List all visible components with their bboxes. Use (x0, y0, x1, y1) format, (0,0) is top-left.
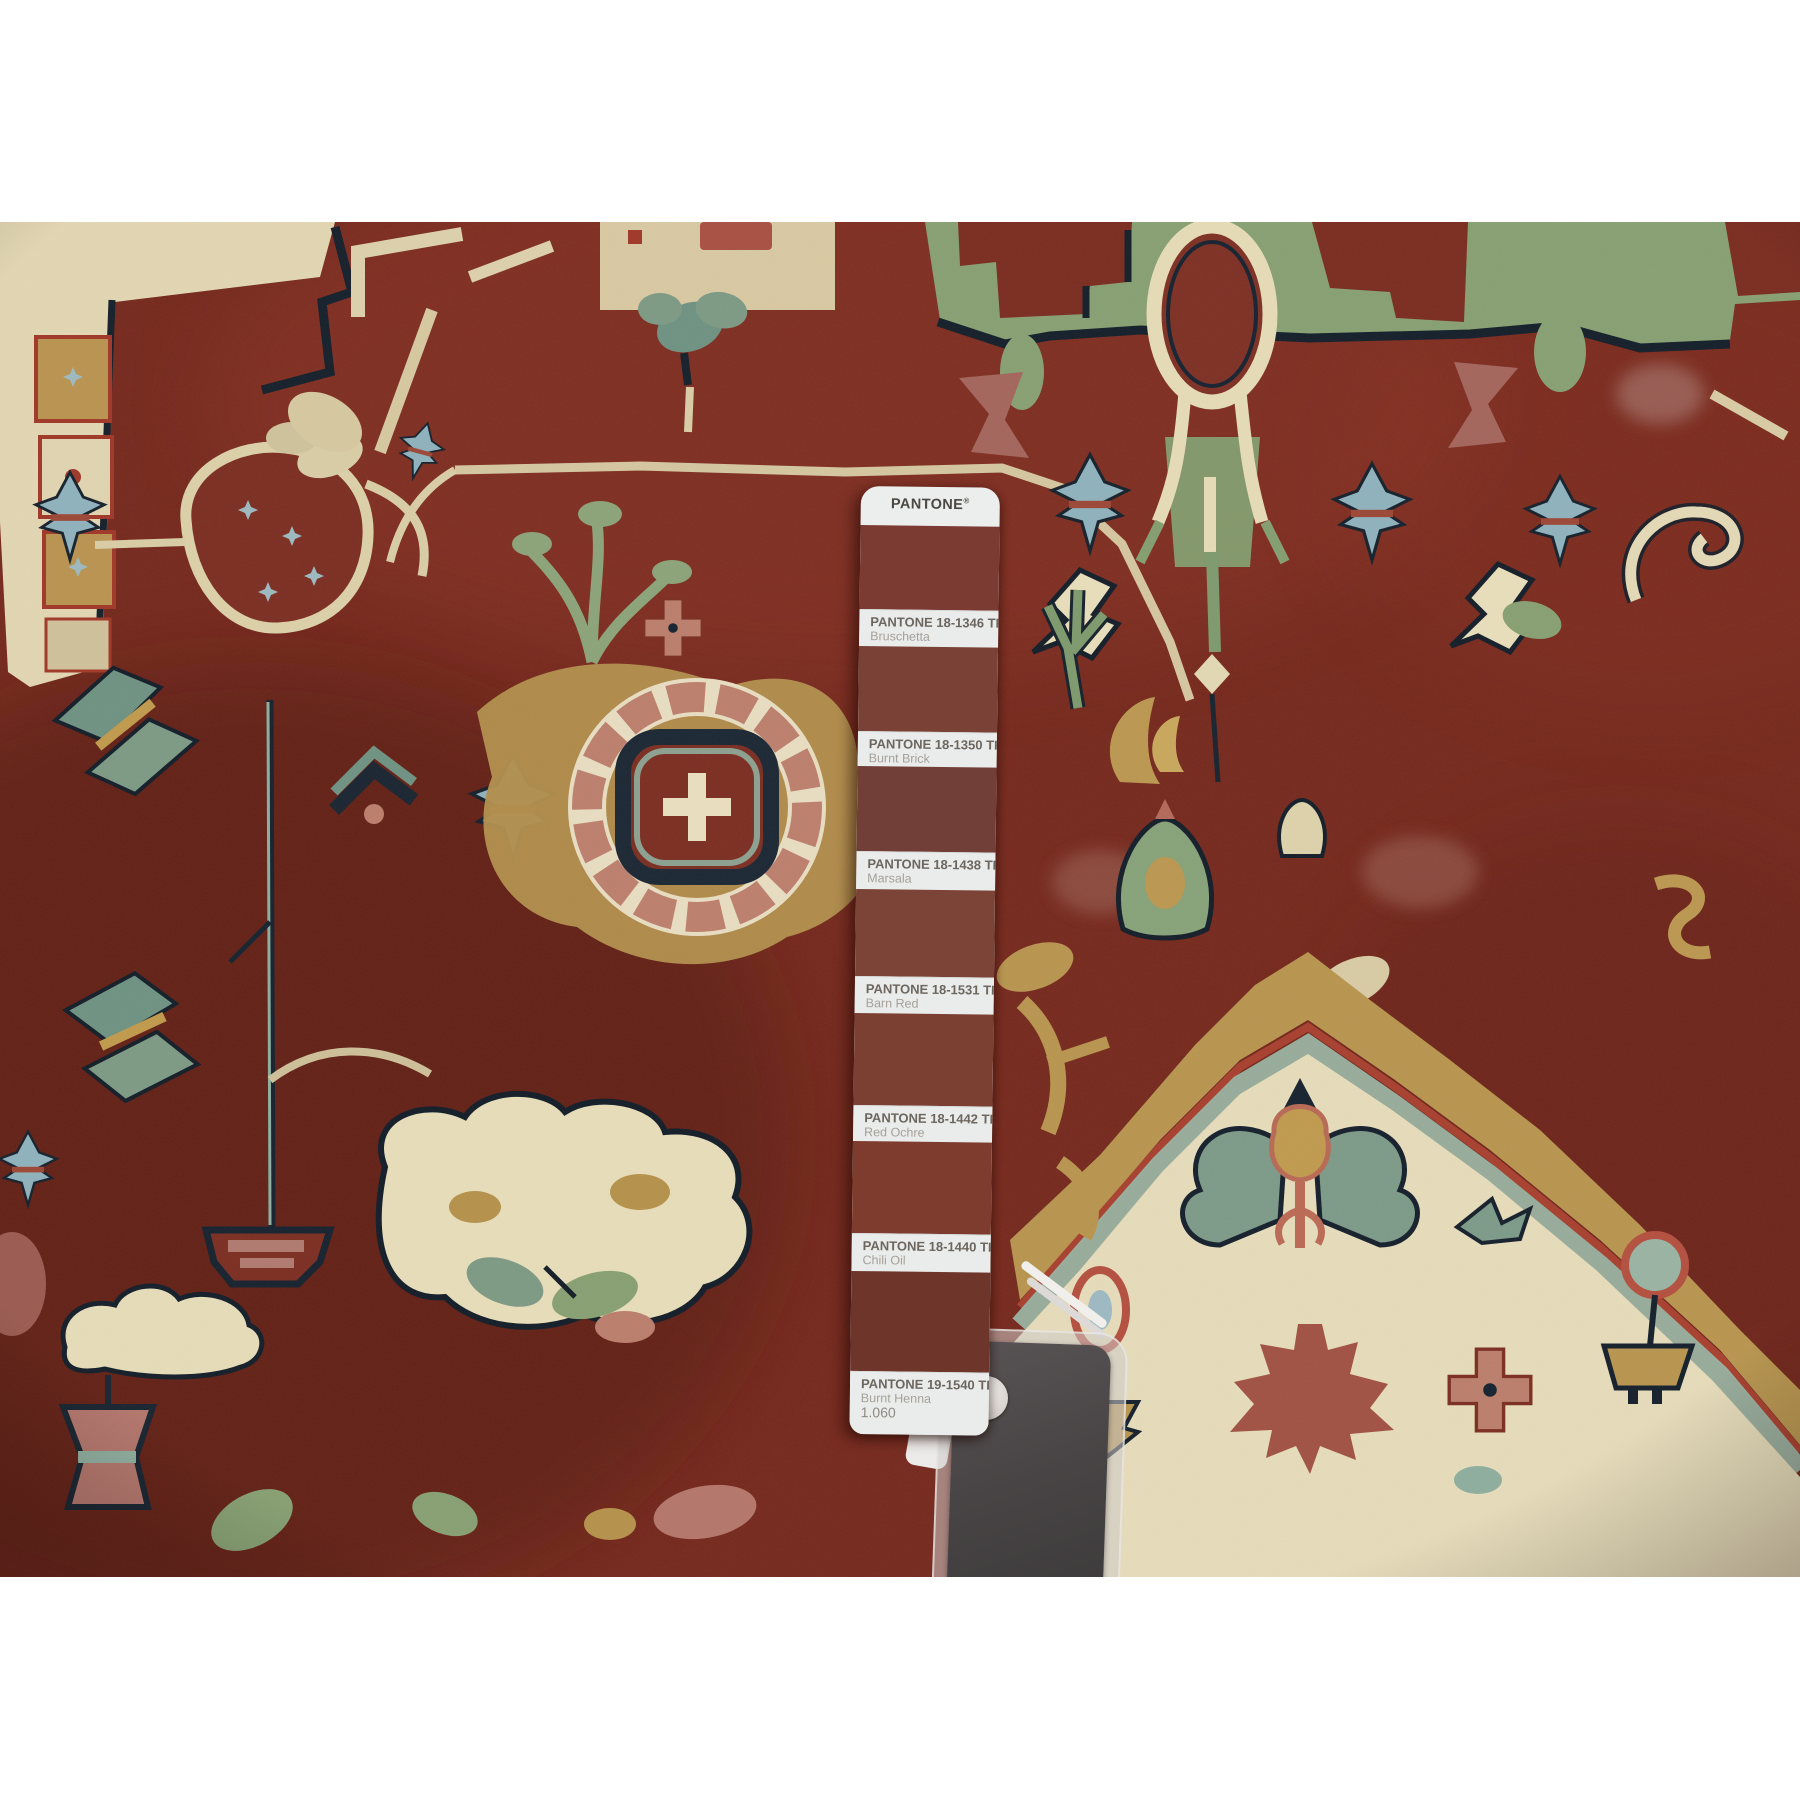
color-chip (859, 525, 999, 611)
color-chip (853, 1013, 993, 1107)
color-chip (858, 646, 998, 733)
color-chip (850, 1271, 990, 1373)
swatch-label: PANTONE 18-1440 TPG Chili Oil (851, 1233, 990, 1273)
color-chip (852, 1141, 992, 1235)
rug-photo: PANTONE® PANTONE 18-1346 TPG Bruschetta … (0, 222, 1800, 1577)
swatch-label: PANTONE 18-1346 TPG Bruschetta (859, 609, 998, 648)
swatch-label: PANTONE 19-1540 TPG Burnt Henna 1.060 (849, 1371, 989, 1436)
color-chip (855, 889, 995, 978)
swatch-label: PANTONE 18-1442 TPG Red Ochre (853, 1105, 992, 1143)
page-number: 1.060 (861, 1404, 896, 1420)
pantone-color-strip: PANTONE® PANTONE 18-1346 TPG Bruschetta … (849, 486, 1000, 1436)
pantone-logo: PANTONE® (861, 486, 1000, 527)
swatch-label: PANTONE 18-1350 TPG Burnt Brick (858, 731, 997, 768)
swatch-label: PANTONE 18-1531 TPG Barn Red (855, 976, 994, 1015)
swatch-label: PANTONE 18-1438 TPG Marsala (856, 851, 995, 891)
color-chip (857, 766, 997, 853)
